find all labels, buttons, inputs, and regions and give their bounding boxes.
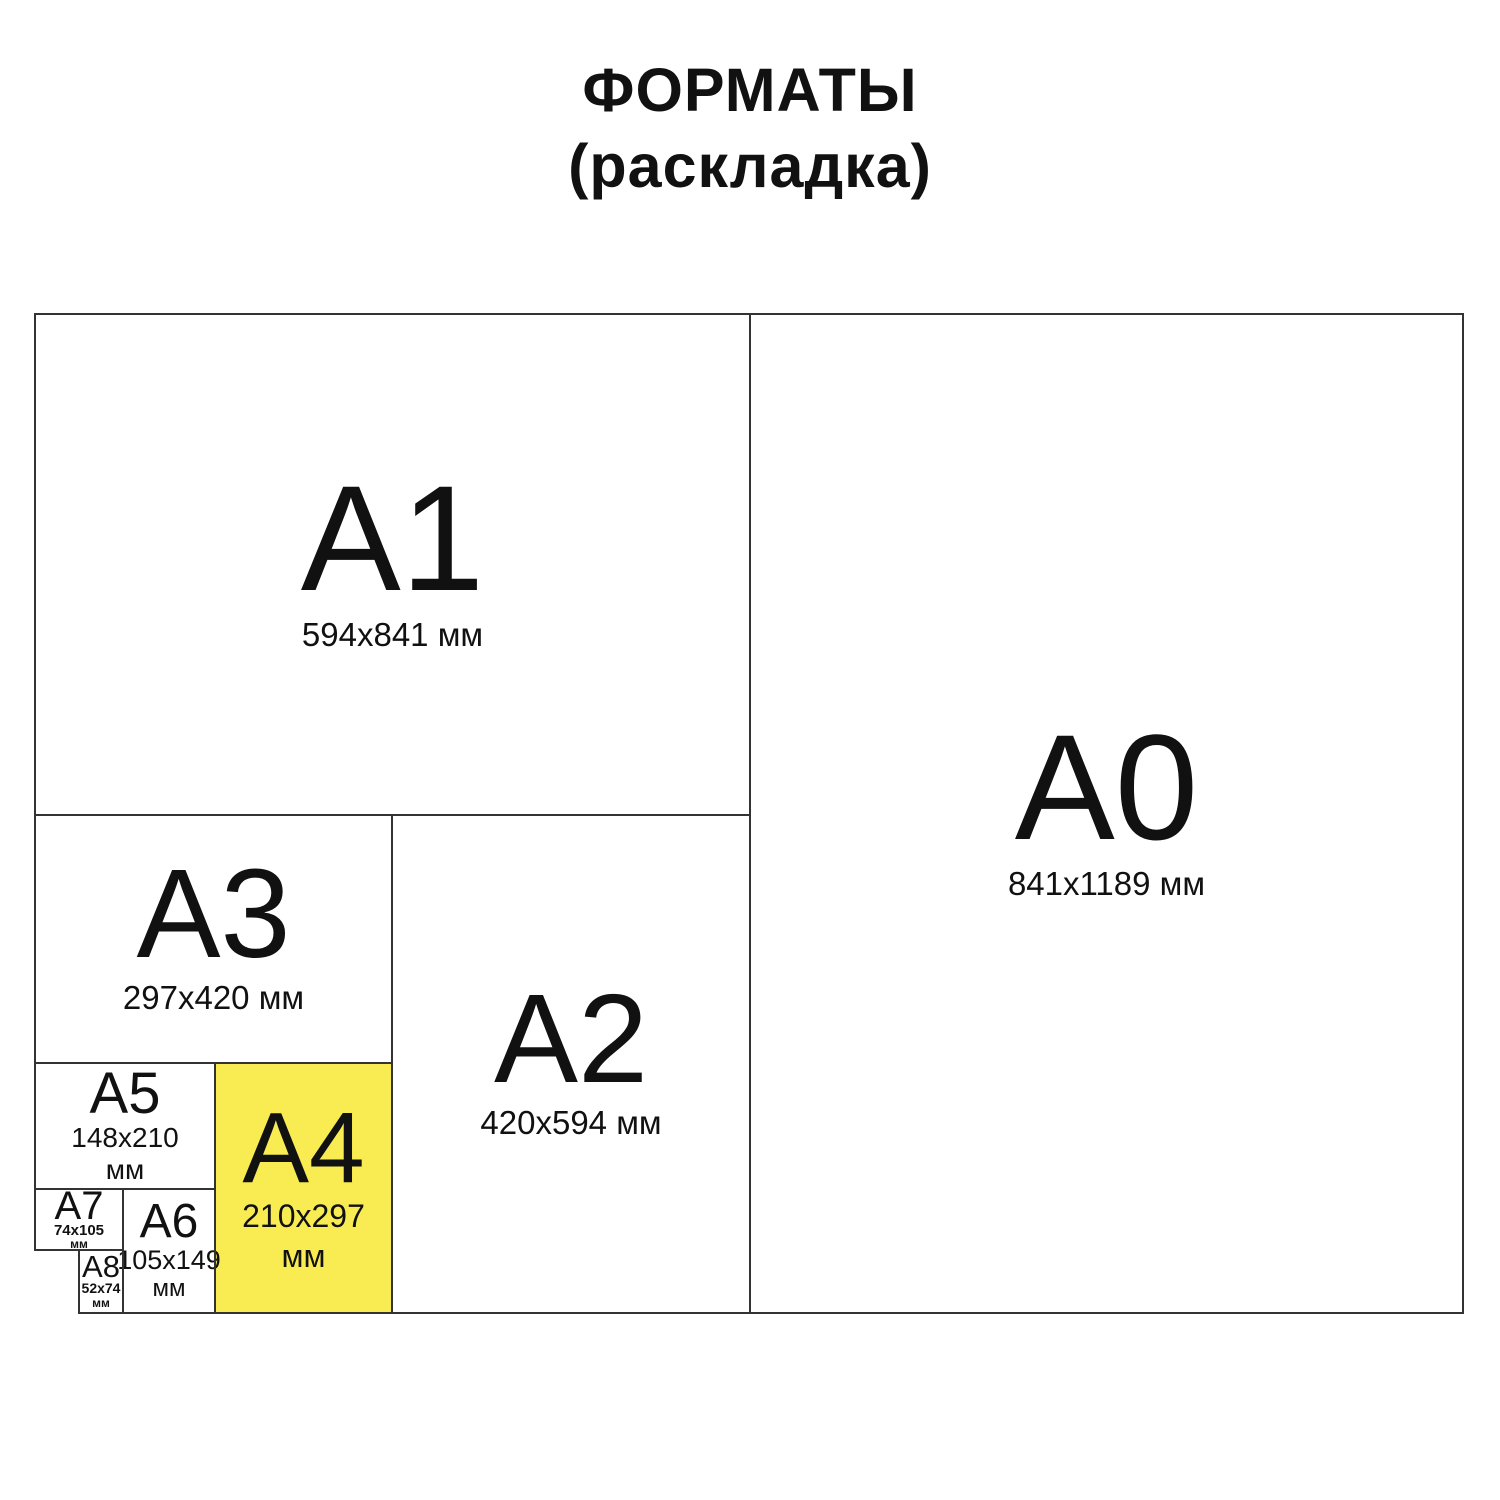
format-a8-unit: мм [92,1296,110,1310]
format-a5-unit: мм [106,1154,145,1186]
format-a8-label: A8 [82,1253,120,1281]
page-title-line-1: ФОРМАТЫ [0,52,1500,128]
format-a5-box: A5 148x210 мм [35,1063,215,1189]
grid-line-right [1462,313,1464,1314]
format-a3-label: A3 [136,857,290,970]
grid-line-bottom [78,1312,1464,1314]
format-a6-box: A6 105x149 мм [123,1189,215,1313]
format-a1-size: 594x841 мм [302,612,483,658]
divider-a4-left [214,1062,216,1314]
divider-a5-bottom [34,1188,216,1190]
divider-a8-left [78,1249,80,1314]
page-title: ФОРМАТЫ (раскладка) [0,52,1500,204]
format-a6-unit: мм [153,1275,186,1303]
format-a8-box: A8 52x74 мм [79,1250,123,1313]
page-title-line-2: (раскладка) [0,128,1500,204]
format-a4-unit: мм [282,1236,326,1276]
divider-a6-left [122,1188,124,1314]
divider-a0-left [749,313,751,1314]
format-a5-size: 148x210 [71,1122,178,1154]
format-a2-box: A2 420x594 мм [392,815,750,1313]
format-a7-label: A7 [55,1189,104,1223]
format-a0-size: 841x1189 мм [1008,861,1205,907]
format-a4-box-highlighted: A4 210x297 мм [215,1063,392,1313]
format-a4-label: A4 [242,1101,364,1196]
format-a3-size: 297x420 мм [123,975,304,1021]
format-a1-label: A1 [301,471,484,606]
format-a7-box: A7 74x105 мм [35,1189,123,1250]
format-a2-label: A2 [494,982,648,1095]
format-a5-label: A5 [90,1066,161,1121]
format-a1-box: A1 594x841 мм [35,314,750,815]
format-a2-size: 420x594 мм [480,1100,661,1146]
format-a7-size: 74x105 [54,1223,104,1238]
paper-formats-infographic: ФОРМАТЫ (раскладка) A1 594x841 мм A0 841… [0,0,1500,1500]
format-a6-label: A6 [140,1199,199,1245]
format-a0-box: A0 841x1189 мм [750,314,1463,1313]
divider-a2-left [391,814,393,1314]
grid-line-left [34,313,36,1251]
format-a6-size: 105x149 [117,1245,221,1275]
format-a4-size: 210x297 [242,1196,365,1236]
format-a8-size: 52x74 [82,1281,121,1296]
format-a0-label: A0 [1015,720,1198,855]
format-a3-box: A3 297x420 мм [35,815,392,1063]
